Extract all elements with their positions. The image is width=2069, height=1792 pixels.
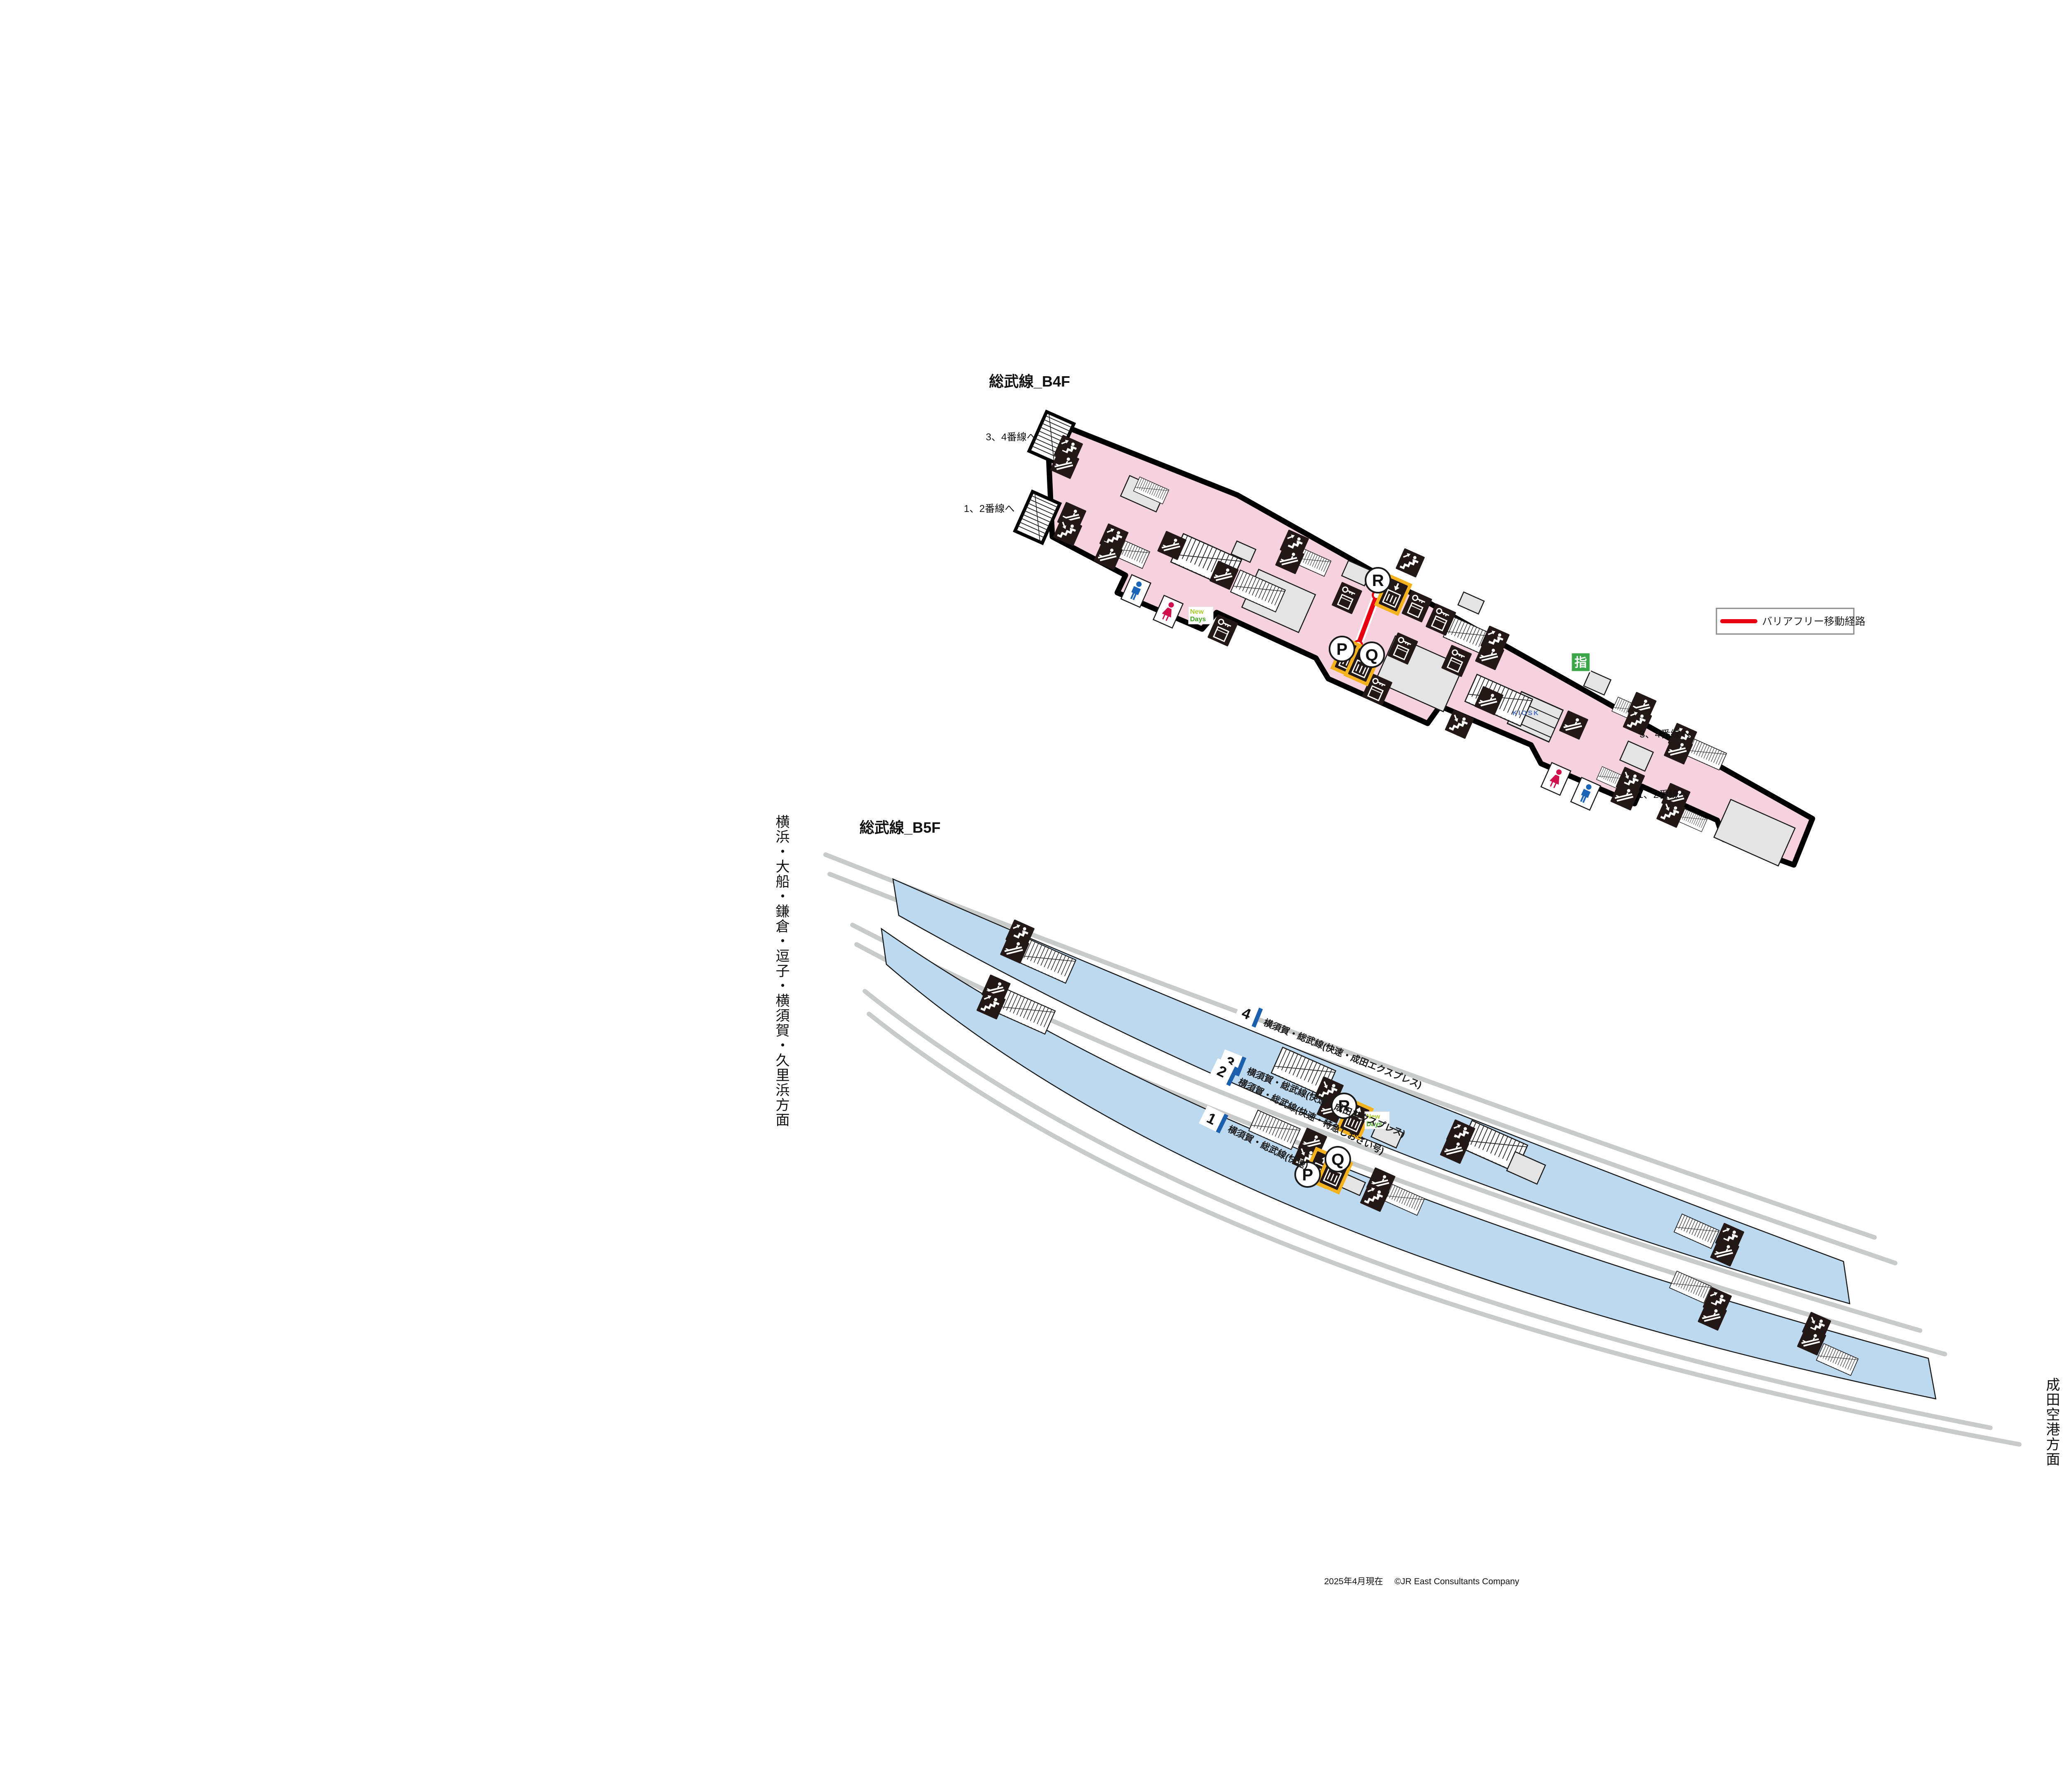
newdays-shop: New Days — [1188, 607, 1213, 624]
reserved-seat-ticket-machine: 指 — [1571, 653, 1590, 672]
reserved-seat-glyph: 指 — [1575, 656, 1587, 670]
kiosk-label: KIOSK — [1512, 710, 1540, 717]
b4f-concourse-shape — [1047, 419, 1812, 865]
point-q-b5f: Q — [1325, 1147, 1350, 1172]
structure-shape — [1458, 592, 1484, 614]
b4f-map: 総武線_B4F 3、4番線へ 1、2番線へ — [964, 373, 1812, 866]
point-q-b4f: Q — [1359, 642, 1384, 667]
point-letter: Q — [1331, 1151, 1344, 1169]
legend-label: バリアフリー移動経路 — [1762, 616, 1865, 627]
footer-copyright: ©JR East Consultants Company — [1395, 1577, 1519, 1586]
b5f-title: 総武線_B5F — [859, 819, 941, 836]
point-p-b4f: P — [1330, 637, 1354, 661]
stairs-icon — [1395, 548, 1425, 577]
legend: バリアフリー移動経路 — [1716, 608, 1865, 634]
point-letter: R — [1372, 572, 1384, 590]
newdays-logo-top: New — [1190, 608, 1204, 615]
footer-date: 2025年4月現在 — [1324, 1577, 1383, 1586]
newdays-logo-bottom: Days — [1190, 616, 1206, 623]
to-tracks-12-label-right: 1、2番線へ — [1638, 789, 1689, 800]
footer: 2025年4月現在 ©JR East Consultants Company — [1324, 1577, 1519, 1586]
to-tracks-34-label-right: 3、4番線へ — [1639, 729, 1690, 740]
to-tracks-34-label: 3、4番線へ — [986, 432, 1037, 443]
b5f-map: 総武線_B5F 横浜・大船・鎌倉・逗子・横須賀・久里浜方面 成田空港方面 — [773, 814, 2059, 1467]
station-floor-map: 総武線_B4F 3、4番線へ 1、2番線へ — [0, 0, 2069, 1792]
to-tracks-12-label: 1、2番線へ — [964, 503, 1015, 514]
point-letter: Q — [1365, 646, 1378, 664]
direction-right-label: 成田空港方面 — [2044, 1377, 2059, 1467]
point-r-b4f: R — [1366, 568, 1390, 593]
direction-left-label: 横浜・大船・鎌倉・逗子・横須賀・久里浜方面 — [773, 814, 790, 1127]
b4f-title: 総武線_B4F — [989, 373, 1070, 390]
point-letter: P — [1337, 640, 1348, 658]
